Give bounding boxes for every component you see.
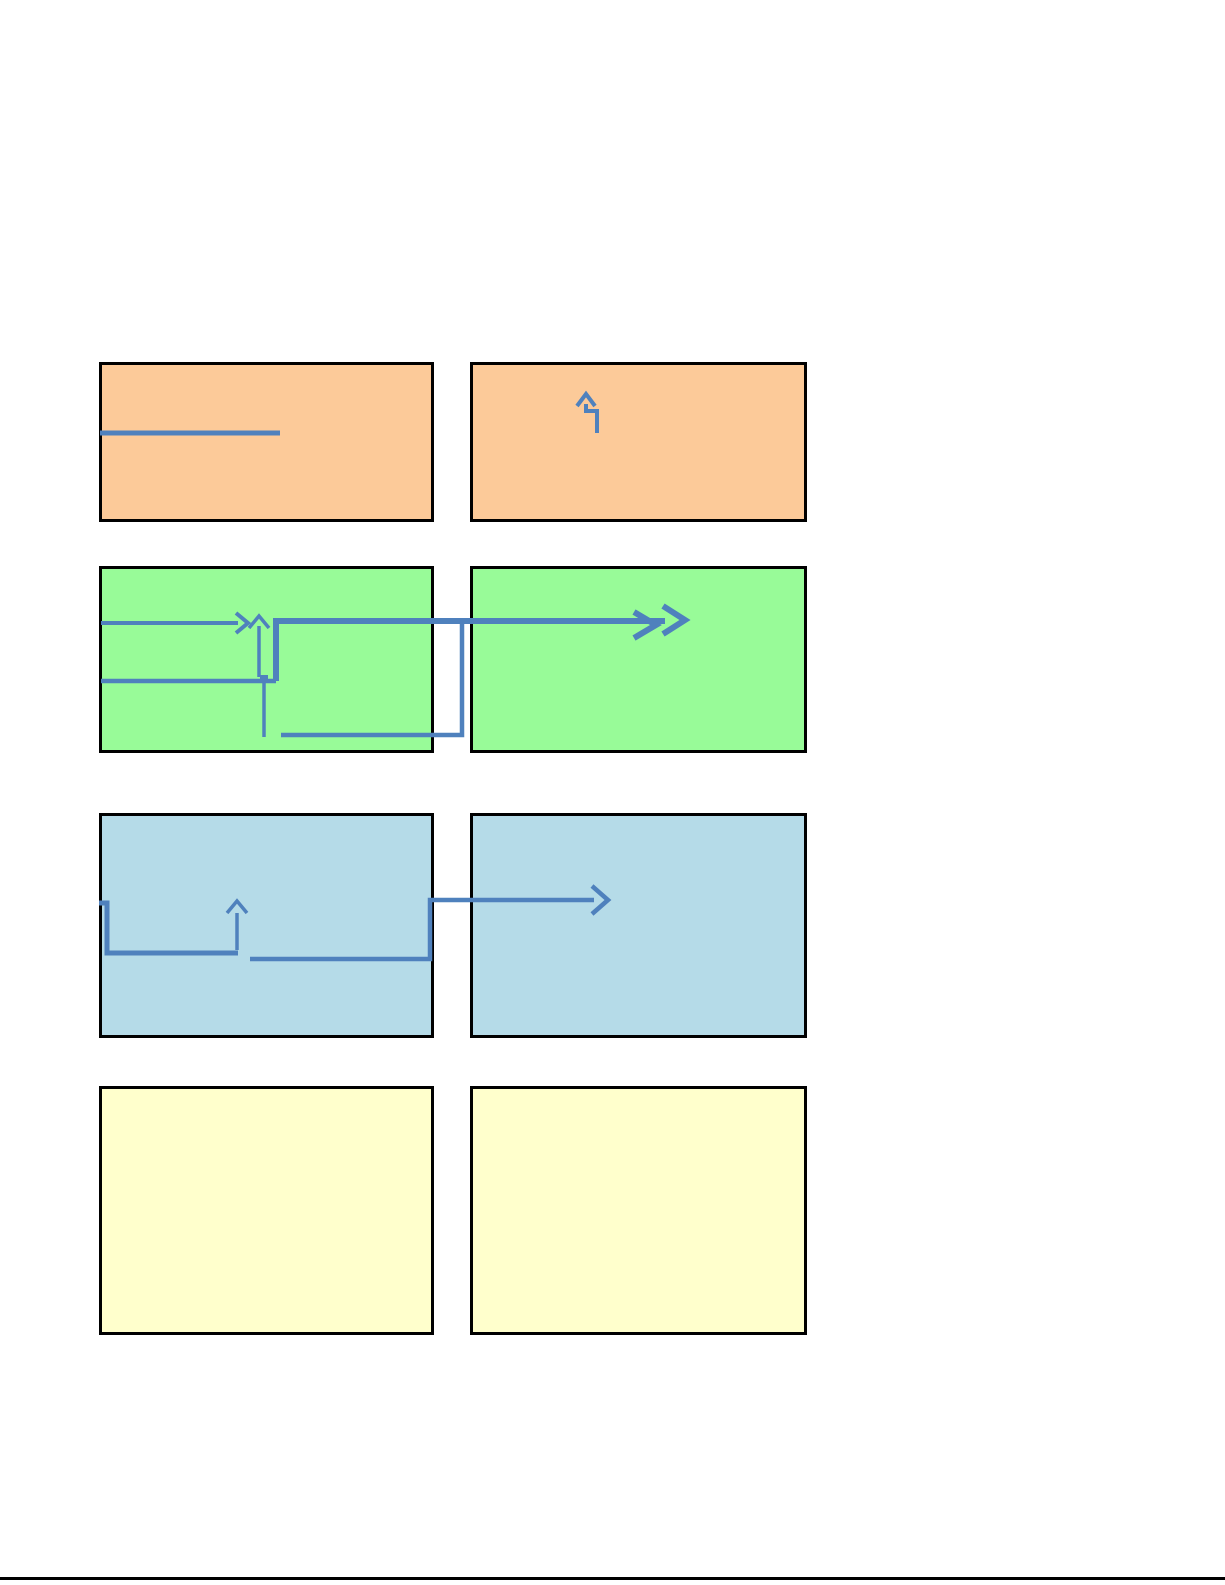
connector-overlay: [0, 0, 1225, 1585]
box-yellow-right: [470, 1086, 807, 1335]
page-bottom-rule: [0, 1577, 1225, 1580]
box-orange-left: [99, 362, 434, 522]
box-blue-left: [99, 813, 434, 1038]
box-green-right: [470, 566, 807, 753]
box-yellow-left: [99, 1086, 434, 1335]
box-orange-right: [470, 362, 807, 522]
diagram-page: [0, 0, 1225, 1585]
box-blue-right: [470, 813, 807, 1038]
box-green-left: [99, 566, 434, 753]
